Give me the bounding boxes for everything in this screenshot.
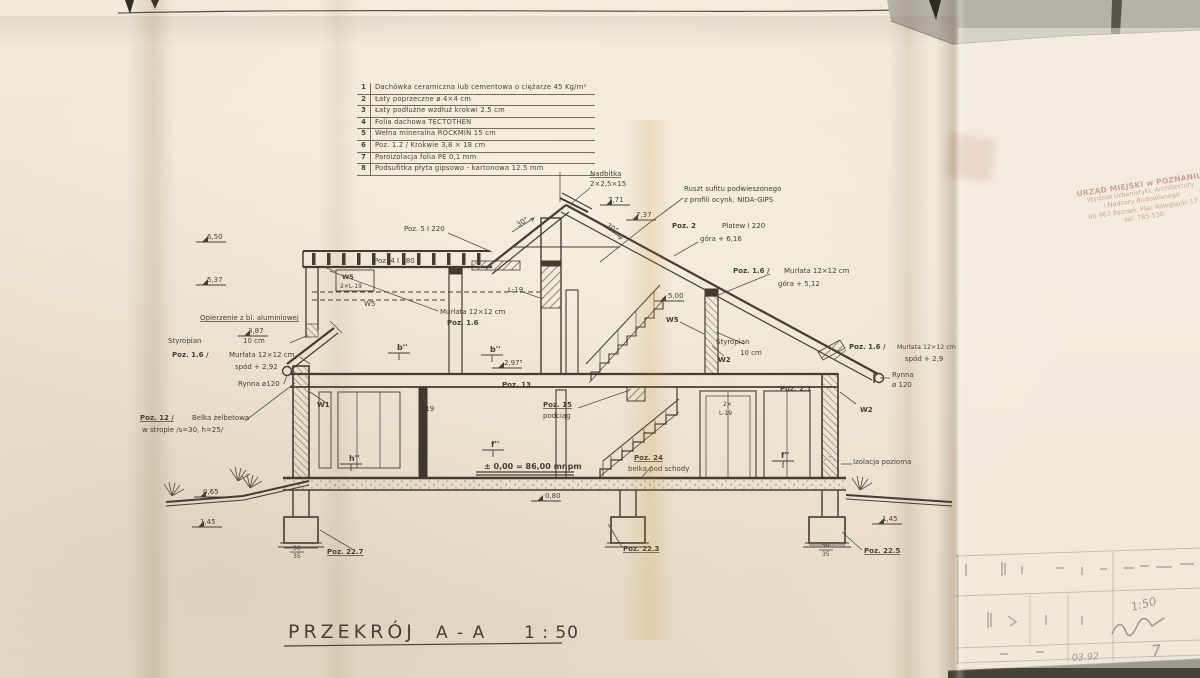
- legend-row-text: Łaty podłużne wzdłuż krokwi 2.5 cm: [371, 106, 505, 117]
- drawing-label: Poz. 22.3: [623, 545, 660, 553]
- drawing-label: belka pod schody: [628, 465, 689, 473]
- drawing-label: Styropian: [168, 337, 201, 345]
- drawing-label: 2×: [723, 401, 732, 408]
- drawing-label: 1 : 50: [524, 623, 579, 643]
- handwritten-notes: 1:5003.927: [1071, 594, 1163, 664]
- drawing-label: Płatew I 220: [722, 222, 765, 230]
- drawing-label: ø 120: [892, 381, 912, 389]
- drawing-label: f'': [781, 451, 789, 460]
- drawing-label: Murłata 12×12 cm: [229, 351, 295, 359]
- drawing-label: Poz. 22.7: [327, 548, 364, 556]
- drawing-label: Poz. 1.6 /: [849, 343, 886, 351]
- legend-row-number: 7: [357, 153, 371, 164]
- drawing-label: spód + 2,9: [905, 355, 943, 363]
- drawing-label: 30°: [515, 216, 530, 229]
- drawing-label: h'': [349, 454, 360, 463]
- foundations: [278, 478, 851, 552]
- drawing-label: 5,37: [207, 276, 223, 284]
- legend-row: 6Poz. 1.2 / Krokwie 3,8 × 18 cm: [357, 141, 595, 153]
- handwritten-text: 7: [1150, 641, 1164, 661]
- attic-walls: [449, 218, 845, 374]
- drawing-label: 0,80: [545, 492, 561, 500]
- legend-row: 5Wełna mineralna ROCKMIN 15 cm: [357, 129, 595, 141]
- scanned-blueprint-photo: 6,505,37Opierzenie z bl. aluminiowej3,87…: [0, 0, 1200, 678]
- legend-row: 8Podsufitka płyta gipsowo - kartonowa 12…: [357, 164, 595, 176]
- legend-row-number: 4: [357, 118, 371, 129]
- drawing-label: góra + 6,16: [700, 235, 742, 243]
- legend-row-number: 2: [357, 95, 371, 106]
- drawing-label: Opierzenie z bl. aluminiowej: [200, 314, 299, 322]
- signature-scribble: [1112, 618, 1164, 636]
- drawing-label: L-19: [719, 410, 732, 417]
- drawing-label: z profili ocynk. NIDA-GIPS: [684, 196, 774, 204]
- drawing-label: Murłata 12×12 cm: [440, 308, 506, 316]
- drawing-label: ± 0,00 = 86,00 mnpm: [484, 462, 582, 471]
- legend-row: 7Paroizolacja folia PE 0,1 mm: [357, 153, 595, 165]
- drawing-label: W5: [342, 273, 354, 281]
- legend-row: 4Folia dachowa TECTOTHEN: [357, 118, 595, 130]
- drawing-label: f'': [491, 440, 499, 449]
- drawing-label: Poz. 15: [543, 401, 572, 409]
- drawing-label: Belka żelbetowa: [192, 414, 249, 422]
- drawing-label: A - A: [436, 623, 486, 643]
- legend-row-text: Wełna mineralna ROCKMIN 15 cm: [371, 129, 496, 140]
- legend-row: 1Dachówka ceramiczna lub cementowa o cię…: [357, 83, 595, 95]
- drawing-label: Poz. 5 I 220: [404, 225, 445, 233]
- drawing-label: Poz. 1.6 /: [733, 267, 770, 275]
- pencil-title-block: [956, 548, 1200, 663]
- drawing-label: 50: [822, 542, 830, 549]
- legend-row-text: Folia dachowa TECTOTHEN: [371, 118, 471, 129]
- drawing-label: Izolacja pozioma: [853, 458, 911, 466]
- legend-row-number: 5: [357, 129, 371, 140]
- handwritten-text: 1:50: [1129, 594, 1157, 614]
- legend-row-number: 6: [357, 141, 371, 152]
- legend-row-text: Dachówka ceramiczna lub cementowa o cięż…: [371, 83, 586, 94]
- drawing-label: Styropian: [716, 338, 749, 346]
- legend-row-text: Poz. 1.2 / Krokwie 3,8 × 18 cm: [371, 141, 485, 152]
- drawing-label: 5,00: [668, 292, 684, 300]
- drawing-label: Ruszt sufitu podwieszonego: [684, 185, 781, 193]
- legend-row-text: Paroizolacja folia PE 0,1 mm: [371, 153, 476, 164]
- drawing-label: W5: [666, 316, 679, 324]
- drawing-label: Poz. 24: [634, 454, 663, 462]
- roof-structure: [283, 193, 884, 383]
- drawing-label: 2×L-19: [340, 283, 362, 290]
- drawing-label: podciąg: [543, 412, 571, 420]
- drawing-label: 2,97⁵: [504, 359, 523, 367]
- drawing-label: 1,45: [200, 518, 216, 526]
- drawing-label: b'': [397, 343, 408, 352]
- staircase: [586, 285, 679, 478]
- drawing-label: L-19: [508, 286, 523, 294]
- drawing-label: Poz. 13: [502, 381, 531, 389]
- drawing-label: W5: [364, 300, 375, 308]
- drawing-label: L-19: [419, 405, 434, 413]
- drawing-label: W1: [317, 401, 330, 409]
- drawing-label: 30: [293, 545, 301, 552]
- drawing-label: Poz. 4 I 180: [374, 257, 415, 265]
- drawing-label: 6,50: [207, 233, 223, 241]
- drawing-label: 1,45: [882, 515, 898, 523]
- drawing-label: spód + 2,92: [235, 363, 278, 371]
- drawing-label: Poz. 22.5: [864, 547, 901, 555]
- legend-row-text: Łaty poprzeczne ø 4×4 cm: [371, 95, 471, 106]
- drawing-label: 0,65: [203, 488, 219, 496]
- drawing-label: Poz. 1.6: [447, 319, 479, 327]
- drawing-label: 7,71: [608, 196, 624, 204]
- drawing-label: 2×2,5×15: [590, 180, 626, 188]
- drawing-label: PRZEKRÓJ: [288, 619, 416, 643]
- drawing-label: 7,37: [636, 211, 652, 219]
- drawing-label: Poz. 12 /: [140, 414, 174, 422]
- drawing-label: 3,87: [248, 327, 264, 335]
- legend-row-text: Podsufitka płyta gipsowo - kartonowa 12.…: [371, 164, 544, 175]
- drawing-label: 10 cm: [243, 337, 265, 345]
- drawing-label: 35: [822, 551, 830, 558]
- drawing-label: góra + 5,12: [778, 280, 820, 288]
- drawing-label: w stropie /s=30, h=25/: [142, 426, 224, 434]
- drawing-label: Rynna: [892, 371, 914, 379]
- drawing-label: W2: [718, 356, 731, 364]
- drawing-label: 35: [293, 553, 301, 560]
- drawing-label: Poz. 1.6 /: [172, 351, 209, 359]
- drawing-label: 10 cm: [740, 349, 762, 357]
- drawing-label: Poz. 2: [672, 222, 696, 230]
- legend-row-number: 3: [357, 106, 371, 117]
- legend-row-number: 8: [357, 164, 371, 175]
- roof-layers-legend: 1Dachówka ceramiczna lub cementowa o cię…: [357, 83, 595, 176]
- drawing-label: Murłata 12×12 cm: [784, 267, 850, 275]
- legend-row-number: 1: [357, 83, 371, 94]
- paper-tears: [125, 0, 941, 20]
- handwritten-text: 03.92: [1071, 651, 1099, 664]
- drawing-label: W2: [860, 406, 873, 414]
- drawing-label: Poz. 2.1: [780, 385, 812, 393]
- legend-row: 2Łaty poprzeczne ø 4×4 cm: [357, 95, 595, 107]
- section-drawing-svg: 6,505,37Opierzenie z bl. aluminiowej3,87…: [0, 0, 1200, 678]
- drawing-label: Rynna ø120: [238, 380, 280, 388]
- legend-row: 3Łaty podłużne wzdłuż krokwi 2.5 cm: [357, 106, 595, 118]
- drawing-label: Murłata 12×12 cm: [897, 344, 956, 351]
- drawing-label: b'': [490, 345, 501, 354]
- leader-lines: [245, 172, 890, 550]
